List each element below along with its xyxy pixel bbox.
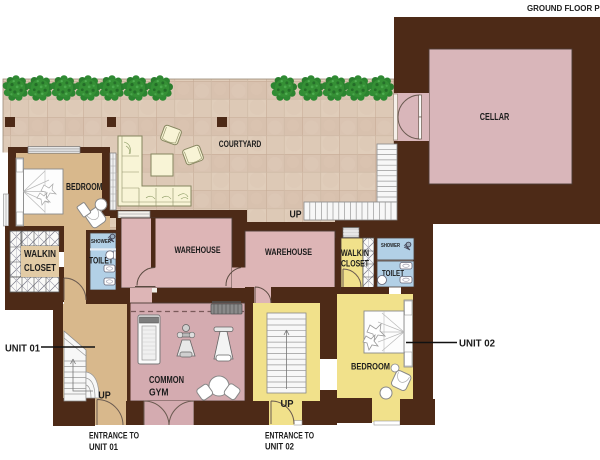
svg-text:CELLAR: CELLAR: [480, 112, 510, 123]
svg-text:GROUND FLOOR PLAN: GROUND FLOOR PLAN: [527, 3, 600, 13]
svg-text:COURTYARD: COURTYARD: [219, 139, 262, 149]
svg-text:ENTRANCE TO: ENTRANCE TO: [265, 430, 314, 441]
svg-text:UNIT 01: UNIT 01: [5, 344, 40, 355]
svg-text:CLOSET: CLOSET: [341, 259, 369, 269]
svg-text:WALKIN: WALKIN: [24, 249, 56, 260]
svg-text:COMMON: COMMON: [149, 375, 184, 386]
svg-text:WAREHOUSE: WAREHOUSE: [175, 245, 221, 256]
svg-text:UNIT 02: UNIT 02: [459, 339, 495, 350]
svg-text:CLOSET: CLOSET: [24, 263, 56, 274]
svg-text:UNIT 01: UNIT 01: [89, 441, 118, 452]
svg-text:SHOWER: SHOWER: [91, 239, 111, 245]
svg-text:BEDROOM: BEDROOM: [66, 182, 103, 193]
svg-text:WAREHOUSE: WAREHOUSE: [265, 247, 312, 258]
svg-text:UP: UP: [290, 210, 302, 221]
svg-text:UP: UP: [98, 391, 111, 402]
svg-text:SHOWER: SHOWER: [381, 243, 400, 249]
svg-text:UP: UP: [281, 399, 294, 410]
svg-text:GYM: GYM: [149, 388, 169, 399]
svg-text:BEDROOM: BEDROOM: [351, 362, 390, 373]
svg-text:ENTRANCE TO: ENTRANCE TO: [89, 430, 139, 441]
svg-text:UNIT 02: UNIT 02: [265, 441, 294, 452]
svg-text:WALKIN: WALKIN: [341, 248, 369, 258]
